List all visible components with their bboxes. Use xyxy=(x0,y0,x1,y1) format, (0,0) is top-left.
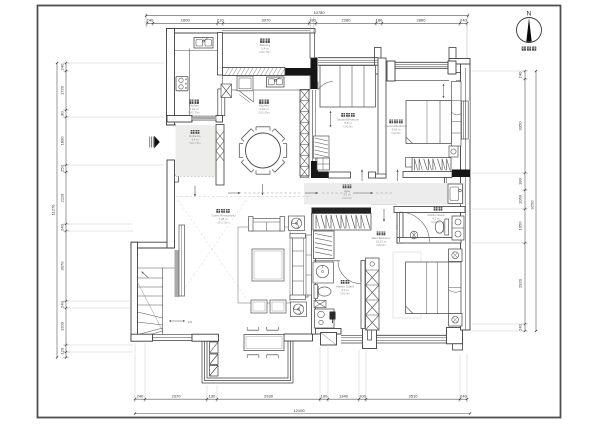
svg-text:3070: 3070 xyxy=(262,17,272,22)
svg-text:3350: 3350 xyxy=(518,121,523,131)
svg-text:CH2.9m: CH2.9m xyxy=(391,131,402,135)
svg-text:CH2.55m: CH2.55m xyxy=(258,111,270,115)
svg-text:240: 240 xyxy=(460,393,467,398)
svg-text:2370: 2370 xyxy=(172,393,182,398)
svg-text:CH2.75m: CH2.75m xyxy=(188,111,200,115)
svg-text:CH2.9m: CH2.9m xyxy=(343,125,354,129)
svg-text:4.1 m: 4.1 m xyxy=(432,216,440,220)
svg-text:1200: 1200 xyxy=(60,321,65,331)
svg-text:240: 240 xyxy=(60,223,65,230)
svg-text:9.81 m: 9.81 m xyxy=(392,128,401,132)
svg-text:2860: 2860 xyxy=(417,17,427,22)
svg-text:1800: 1800 xyxy=(60,136,65,146)
svg-text:80: 80 xyxy=(60,111,65,116)
svg-text:13.12 m: 13.12 m xyxy=(376,239,387,243)
svg-text:N: N xyxy=(527,11,532,18)
svg-text:CH2.75m: CH2.75m xyxy=(259,50,271,54)
svg-text:2930: 2930 xyxy=(264,393,274,398)
svg-text:7.28 m: 7.28 m xyxy=(219,217,228,221)
svg-text:CH2.9m: CH2.9m xyxy=(376,243,387,247)
svg-text:CH2.4m: CH2.4m xyxy=(342,196,353,200)
svg-text:120: 120 xyxy=(60,347,65,354)
svg-text:3.4 m: 3.4 m xyxy=(191,138,199,142)
svg-text:3510: 3510 xyxy=(409,393,419,398)
svg-text:1720: 1720 xyxy=(60,85,65,95)
svg-text:240: 240 xyxy=(460,17,467,22)
svg-text:CH2.75m: CH2.75m xyxy=(217,221,229,225)
svg-text:180: 180 xyxy=(518,177,523,184)
svg-text:240: 240 xyxy=(518,323,523,330)
svg-text:240: 240 xyxy=(60,63,65,70)
svg-text:9250: 9250 xyxy=(529,200,534,210)
svg-text:210: 210 xyxy=(217,17,224,22)
svg-text:3.1 m: 3.1 m xyxy=(341,288,349,292)
svg-text:1050: 1050 xyxy=(518,221,523,231)
svg-text:1600: 1600 xyxy=(181,17,191,22)
svg-text:10780: 10780 xyxy=(313,10,325,15)
svg-text:CH2.4m: CH2.4m xyxy=(431,220,442,224)
svg-text:2110: 2110 xyxy=(60,193,65,202)
svg-text:1000: 1000 xyxy=(395,223,399,229)
svg-text:240: 240 xyxy=(518,71,523,78)
svg-text:240: 240 xyxy=(147,17,154,22)
svg-text:180: 180 xyxy=(309,17,316,22)
svg-text:250: 250 xyxy=(60,164,65,171)
svg-text:240: 240 xyxy=(60,300,65,307)
svg-text:8.8 m: 8.8 m xyxy=(344,121,352,125)
svg-text:CH2.75m: CH2.75m xyxy=(189,141,201,145)
svg-text:240: 240 xyxy=(188,320,193,324)
svg-text:2920: 2920 xyxy=(518,278,523,288)
svg-text:180: 180 xyxy=(376,17,383,22)
svg-text:1340: 1340 xyxy=(339,393,349,398)
svg-text:100: 100 xyxy=(321,393,328,398)
svg-text:11270: 11270 xyxy=(51,204,56,216)
svg-text:12100: 12100 xyxy=(293,408,305,413)
svg-text:130: 130 xyxy=(209,393,216,398)
svg-text:240: 240 xyxy=(137,393,144,398)
svg-text:100: 100 xyxy=(359,393,366,398)
svg-text:1060: 1060 xyxy=(518,194,523,204)
svg-text:3070: 3070 xyxy=(60,261,65,271)
svg-text:2280: 2280 xyxy=(342,17,352,22)
svg-text:CH2.4m: CH2.4m xyxy=(340,291,351,295)
